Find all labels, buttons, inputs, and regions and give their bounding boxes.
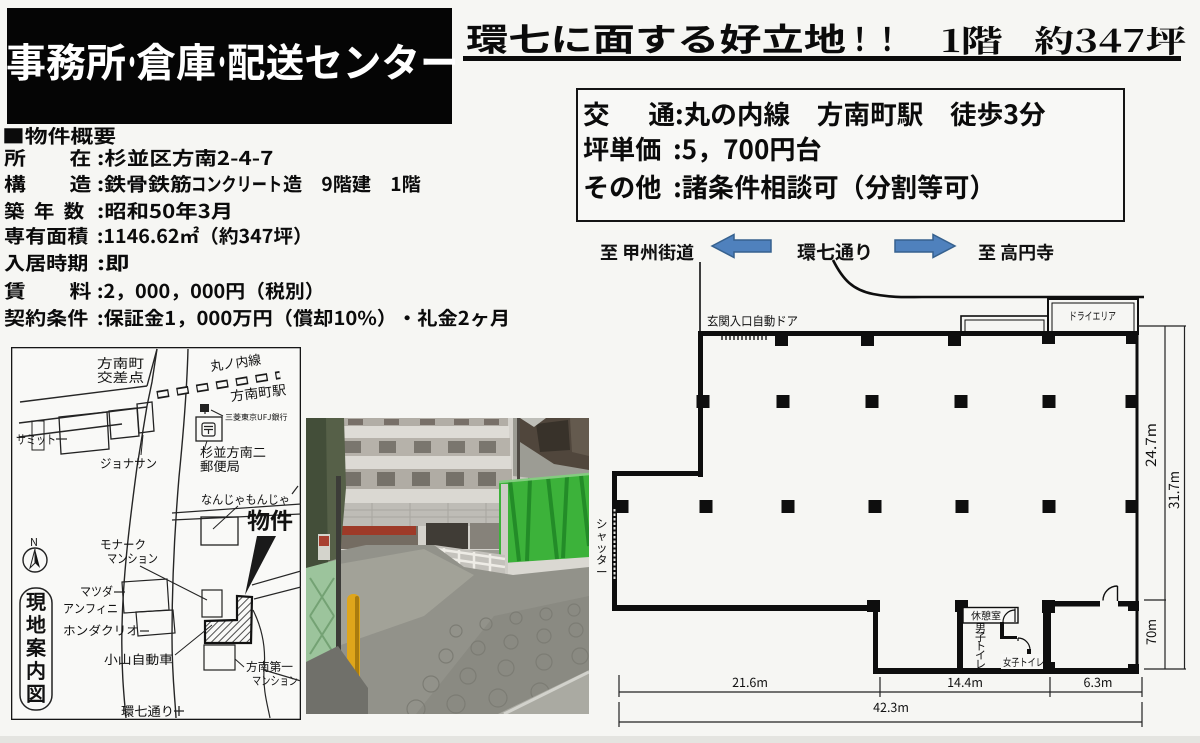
svg-text:男子トイレ: 男子トイレ xyxy=(975,620,986,672)
svg-text:ジョナサン: ジョナサン xyxy=(100,453,157,472)
svg-text:アンフィニ: アンフィニ xyxy=(63,598,118,617)
svg-text:小山自動車: 小山自動車 xyxy=(104,649,173,668)
svg-text:6.3m: 6.3m xyxy=(1084,672,1113,691)
svg-text:至 甲州街道: 至 甲州街道 xyxy=(600,239,694,265)
svg-text:31.7m: 31.7m xyxy=(1164,471,1184,509)
svg-text:物件: 物件 xyxy=(247,502,293,536)
svg-text:マンション: マンション xyxy=(252,672,298,689)
svg-text:玄関入口自動ドア: 玄関入口自動ドア xyxy=(707,311,798,330)
svg-text:至 高円寺: 至 高円寺 xyxy=(978,239,1054,265)
svg-text:郵便局: 郵便局 xyxy=(200,456,240,475)
svg-text:交差点: 交差点 xyxy=(97,367,144,386)
svg-text:現地案内図: 現地案内図 xyxy=(25,586,47,707)
svg-text:70m: 70m xyxy=(1141,619,1160,645)
svg-text:N: N xyxy=(30,534,38,550)
svg-text:シャッター: シャッター xyxy=(596,516,608,580)
svg-text:環七通り: 環七通り xyxy=(797,238,873,265)
svg-text:マンション: マンション xyxy=(107,548,158,567)
svg-text:サミット: サミット xyxy=(16,429,56,448)
svg-text:21.6m: 21.6m xyxy=(732,672,768,691)
svg-text:女子トイレ: 女子トイレ xyxy=(1003,655,1044,670)
svg-text:ホンダクリオ: ホンダクリオ xyxy=(63,620,139,639)
svg-text:三菱東京UFJ銀行: 三菱東京UFJ銀行 xyxy=(225,412,287,423)
svg-text:環七通り: 環七通り xyxy=(121,701,174,720)
svg-text:14.4m: 14.4m xyxy=(947,672,983,691)
svg-text:42.3m: 42.3m xyxy=(873,697,909,716)
svg-text:ドライエリア: ドライエリア xyxy=(1069,308,1116,324)
svg-text:24.7m: 24.7m xyxy=(1141,423,1161,467)
